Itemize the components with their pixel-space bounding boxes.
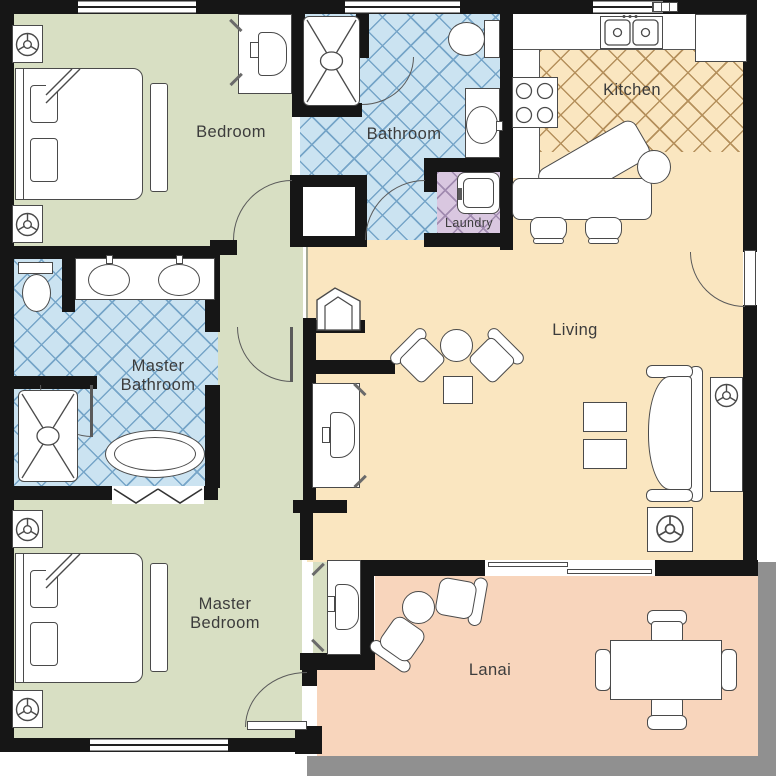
toilet-bowl (22, 274, 51, 312)
room-label-master-bedroom: Master Bedroom (175, 595, 275, 633)
bedroom-window (78, 0, 196, 14)
bathroom-window (345, 0, 460, 14)
pillow (30, 138, 58, 182)
bed-headboard (15, 68, 24, 200)
pillow (30, 622, 58, 666)
dining-chair (647, 715, 687, 730)
stove-burners (512, 77, 558, 128)
bar-stool-base (588, 238, 619, 244)
wall-bathroom-south-b (425, 233, 501, 247)
patio-chair-seat (434, 576, 478, 620)
bed-headboard (15, 553, 24, 683)
wall-master-bath-east-lower (205, 385, 220, 488)
washer-drum (463, 178, 494, 208)
wall-bathroom-kitchen (500, 14, 513, 250)
wall-master-bath-south (0, 486, 112, 500)
desk-chair-icon (330, 412, 355, 458)
lanai-railing-bottom (307, 756, 776, 776)
patio-chair (430, 570, 489, 627)
lamp-icon (654, 513, 686, 545)
desk-chair-icon (258, 32, 287, 76)
coffee-table (583, 439, 627, 469)
master-bedroom-window (90, 738, 228, 752)
faucet-icon (496, 121, 503, 131)
floor-plan: Bedroom Bathroom Kitchen Laundry Master … (0, 0, 780, 776)
desk-chair-icon (335, 584, 359, 630)
side-table (443, 376, 473, 404)
island-round-end (637, 150, 671, 184)
entry-door-leaf (744, 250, 756, 306)
toilet-icon (484, 20, 500, 58)
washer-door-latch (458, 188, 462, 200)
round-table (440, 329, 473, 362)
wall-laundry-north (424, 158, 513, 172)
vent-grille (652, 2, 678, 12)
sliding-door-panel-right (567, 569, 652, 574)
room-label-lanai: Lanai (420, 661, 560, 680)
wall-tv-nook-lower (315, 360, 395, 374)
wall-master-bedroom-east-upper (300, 513, 313, 560)
shower-drain-icon (303, 16, 360, 106)
wall-lanai-northwest (300, 653, 375, 670)
kitchen-sink-basins (600, 14, 663, 49)
bed-fold-icon (44, 67, 82, 105)
room-label-master-bathroom: Master Bathroom (108, 357, 208, 395)
shower-drain-icon (18, 390, 78, 482)
bathtub-inner (114, 437, 196, 471)
refrigerator (695, 14, 747, 62)
sliding-door-panel-left (488, 562, 568, 567)
island-counter (512, 178, 652, 220)
lamp-icon (713, 382, 740, 409)
room-label-kitchen: Kitchen (562, 81, 702, 100)
wall-living-lanai-east (655, 560, 758, 576)
room-label-bedroom: Bedroom (161, 123, 301, 142)
lamp-icon (14, 516, 41, 543)
lamp-icon (14, 696, 41, 723)
bar-stool-base (533, 238, 564, 244)
wall-bottom-west (0, 738, 90, 752)
wall-laundry-west-jamb (424, 158, 437, 192)
tv-icon (314, 284, 364, 333)
sink-icon (158, 264, 200, 296)
sink-icon (88, 264, 130, 296)
room-label-laundry lbl-s: Laundry (432, 216, 506, 230)
master-bath-inner-door-leaf (90, 385, 93, 437)
wall-right-lower (743, 305, 757, 562)
toilet-icon (18, 262, 53, 274)
desk-chair-icon (327, 596, 335, 612)
lanai-floor-west (317, 670, 375, 756)
dining-table (610, 640, 722, 700)
lamp-icon (14, 31, 41, 58)
faucet-icon (176, 255, 183, 264)
bifold-door-icon (112, 487, 204, 505)
toilet-bowl (448, 22, 485, 56)
lanai-railing-right (758, 562, 776, 776)
lanai-door-leaf (247, 721, 307, 730)
wall-lanai-corner (295, 726, 322, 754)
wall-living-lanai-west (374, 560, 485, 576)
wall-hall-living-stub (293, 500, 347, 513)
coffee-table (583, 402, 627, 432)
bench (150, 563, 168, 672)
dining-chair (595, 649, 611, 691)
faucet-icon (106, 255, 113, 264)
couch-seat (648, 376, 692, 490)
master-bathroom-door-leaf (290, 327, 293, 382)
bed-fold-icon (44, 552, 82, 590)
couch-arm (646, 489, 693, 502)
dining-chair (721, 649, 737, 691)
lamp-icon (14, 211, 41, 238)
hallway-living-threshold (306, 240, 308, 320)
room-label-living: Living (505, 321, 645, 340)
room-label-bathroom: Bathroom (334, 125, 474, 144)
desk-chair-icon (322, 427, 330, 443)
closet-interior (303, 187, 355, 236)
wall-toilet-nook (62, 258, 75, 312)
